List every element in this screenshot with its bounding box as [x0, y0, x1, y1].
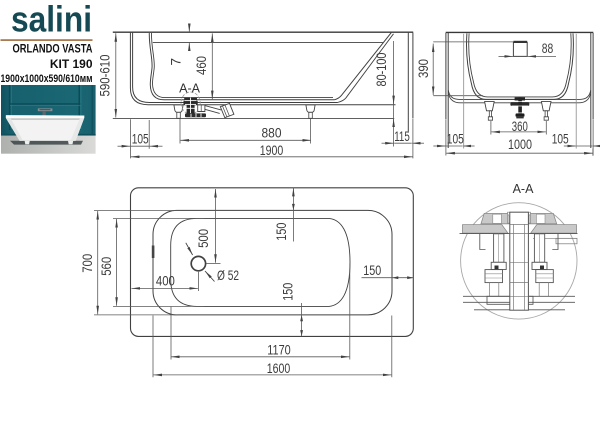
svg-text:7: 7: [169, 58, 184, 66]
svg-text:460: 460: [194, 56, 209, 75]
svg-text:115: 115: [394, 129, 410, 144]
svg-text:1900: 1900: [260, 143, 284, 158]
svg-text:salini: salini: [11, 0, 92, 40]
svg-text:880: 880: [262, 126, 282, 141]
svg-text:80-100: 80-100: [374, 52, 389, 86]
svg-text:1170: 1170: [267, 343, 291, 358]
svg-text:1600: 1600: [267, 361, 291, 376]
svg-text:390: 390: [416, 59, 431, 78]
svg-text:150: 150: [274, 222, 289, 240]
svg-text:105: 105: [447, 131, 464, 146]
svg-text:88: 88: [542, 41, 554, 56]
svg-text:A-A: A-A: [513, 182, 535, 196]
svg-text:1900x1000x590/610мм: 1900x1000x590/610мм: [1, 73, 93, 85]
svg-text:150: 150: [363, 263, 381, 278]
svg-text:105: 105: [132, 132, 149, 147]
svg-text:KIT 190: KIT 190: [50, 57, 93, 71]
svg-text:1000: 1000: [508, 137, 532, 152]
svg-text:A-A: A-A: [179, 82, 201, 96]
svg-text:Ø 52: Ø 52: [217, 268, 239, 283]
svg-text:ORLANDO VASTA: ORLANDO VASTA: [13, 42, 93, 56]
svg-text:700: 700: [80, 254, 95, 273]
svg-text:590-610: 590-610: [98, 54, 113, 96]
svg-text:560: 560: [99, 257, 114, 276]
svg-text:105: 105: [552, 131, 569, 146]
svg-text:500: 500: [196, 229, 211, 248]
svg-text:400: 400: [156, 273, 175, 288]
svg-text:150: 150: [281, 283, 296, 301]
svg-text:360: 360: [512, 119, 528, 134]
